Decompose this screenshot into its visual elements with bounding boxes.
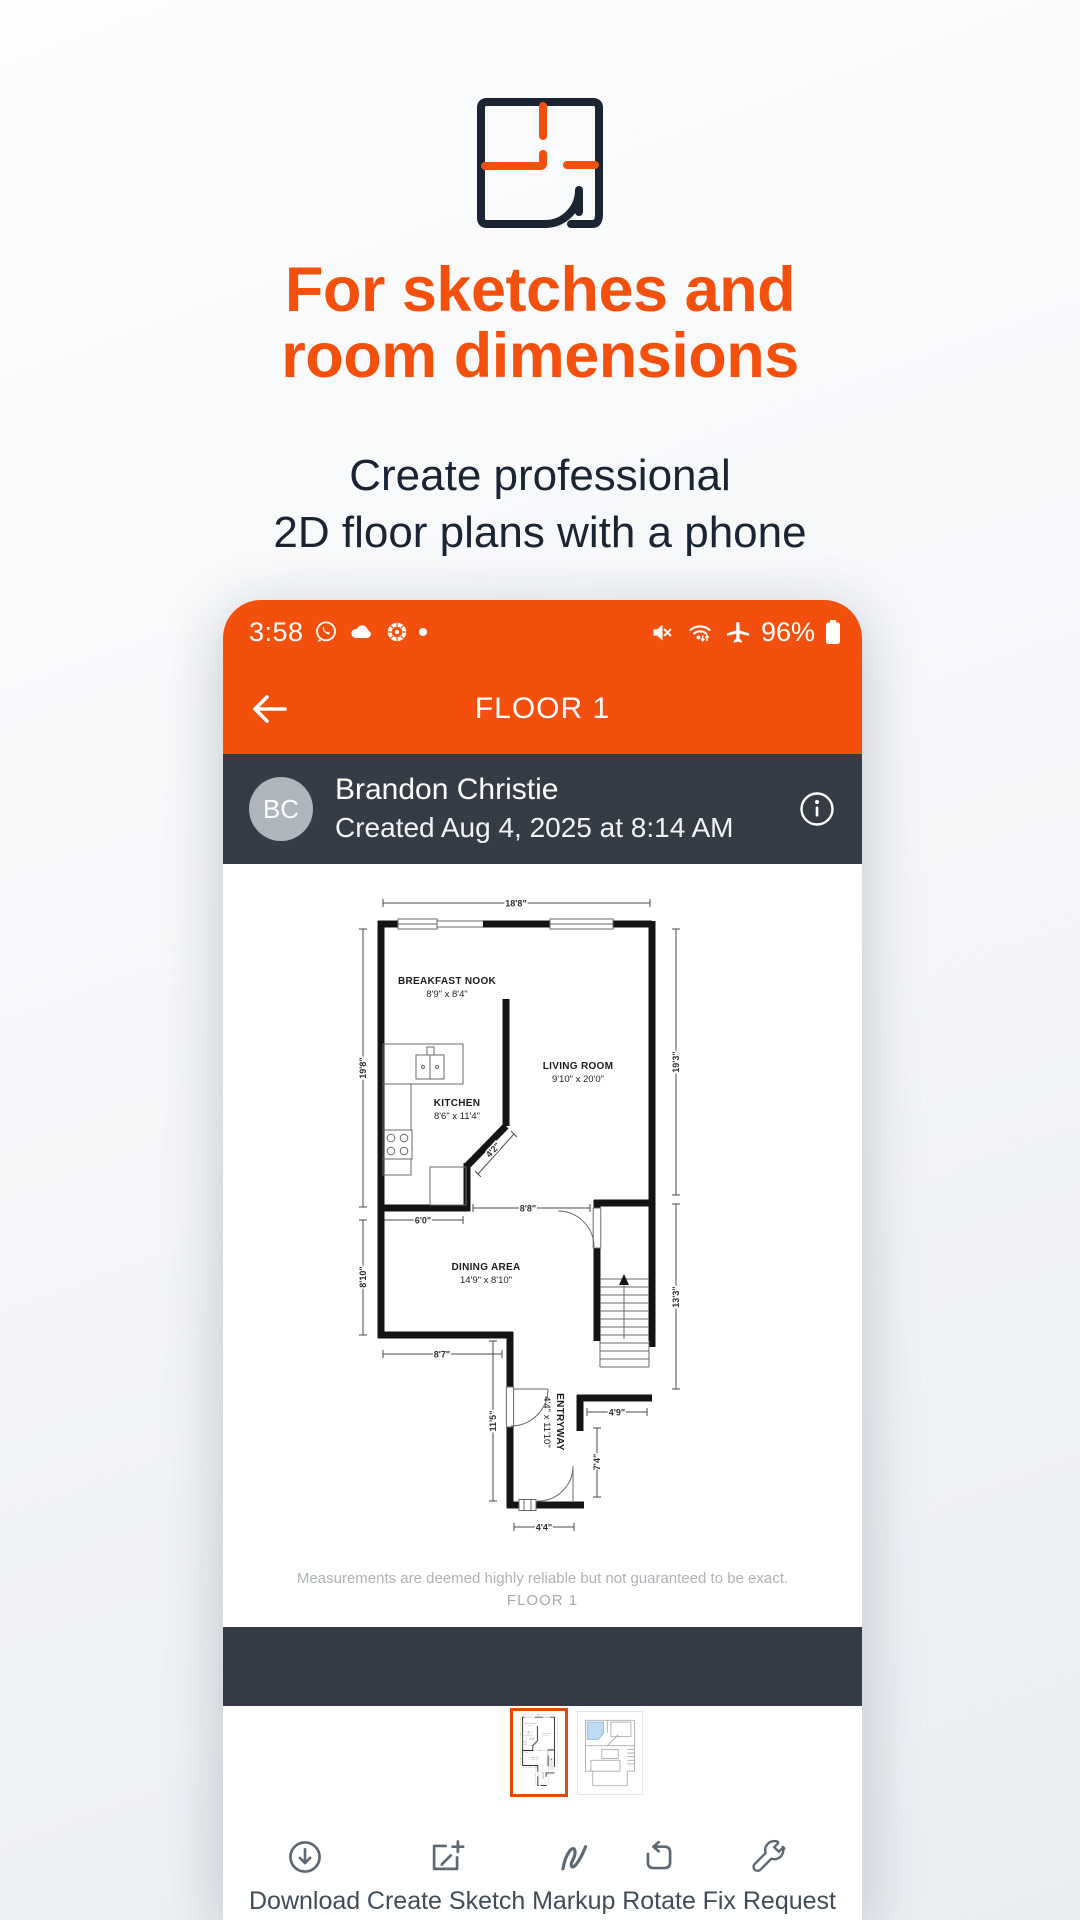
dim-label: 18'8" [505,899,526,909]
floorplan-icon [477,98,603,233]
rotate-icon [640,1838,678,1876]
info-icon[interactable] [798,790,836,828]
dimension-lines [359,899,680,1531]
thumbnail-strip [257,1706,862,1797]
whatsapp-icon [313,619,339,645]
created-date: Created Aug 4, 2025 at 8:14 AM [335,809,734,847]
avatar: BC [249,777,313,841]
floor-name-label: FLOOR 1 [223,1592,862,1609]
cbc-icon [384,619,410,645]
cloud-icon [348,619,375,645]
dim-label: 6'0" [415,1216,431,1226]
room-size: 8'6" x 11'4" [434,1111,480,1122]
battery-percent: 96% [761,617,815,648]
back-button[interactable] [247,689,291,729]
battery-icon [824,618,842,646]
floorplan-drawing: BREAKFAST NOOK 8'9" x 8'4" LIVING ROOM 9… [350,889,690,1569]
dim-label: 19'3" [671,1051,681,1072]
mute-icon [649,619,676,646]
room-label: DINING AREA [451,1262,520,1273]
stairs [600,1274,649,1367]
highlighted-room [587,1722,603,1739]
floor-1-thumbnail[interactable] [510,1708,568,1797]
dim-label: 13'3" [671,1286,681,1307]
markup-icon [555,1838,593,1876]
download-button[interactable]: Download [249,1838,360,1920]
room-label: KITCHEN [434,1098,481,1109]
status-time: 3:58 [249,617,304,648]
rotate-button[interactable]: Rotate [622,1838,696,1920]
download-icon [286,1838,324,1876]
app-bar-title: FLOOR 1 [223,692,862,726]
user-name: Brandon Christie [335,771,734,809]
wifi-icon [685,619,715,646]
room-size: 4'4" x 11'10" [541,1396,552,1447]
notification-dot [419,628,427,636]
bottom-dark-strip [223,1627,862,1706]
room-size: 9'10" x 20'0" [552,1074,604,1085]
dim-label: 19'8" [358,1057,368,1078]
doors [506,1208,600,1511]
fix-request-icon [750,1838,788,1876]
status-bar: 3:58 [223,600,862,664]
floor-2-thumbnail[interactable] [577,1711,643,1795]
dim-label: 8'10" [358,1266,368,1287]
page-subtitle: Create professional 2D floor plans with … [0,447,1080,561]
room-label: ENTRYWAY [554,1393,565,1451]
dim-label: 4'9" [609,1408,625,1418]
dim-label: 4'4" [536,1523,552,1533]
app-bar: FLOOR 1 [223,664,862,754]
room-size: 14'9" x 8'10" [460,1275,512,1286]
airplane-icon [724,618,752,646]
floorplan-viewer: BREAKFAST NOOK 8'9" x 8'4" LIVING ROOM 9… [223,864,862,1627]
user-bar: BC Brandon Christie Created Aug 4, 2025 … [223,754,862,864]
room-label: LIVING ROOM [543,1061,614,1072]
phone-mockup: 3:58 [223,600,862,1920]
page-title: For sketches and room dimensions [0,257,1080,389]
room-label: BREAKFAST NOOK [398,976,497,987]
dim-label: 8'7" [434,1350,450,1360]
dim-label: 11'5" [488,1411,498,1432]
room-size: 8'9" x 8'4" [426,989,468,1000]
walls [378,921,652,1508]
dim-label: 7'4" [592,1454,602,1470]
kitchen-fixtures [383,1044,466,1205]
create-sketch-button[interactable]: Create Sketch [367,1838,525,1920]
measurement-disclaimer: Measurements are deemed highly reliable … [223,1570,862,1587]
dim-label: 8'8" [520,1204,536,1214]
fix-request-button[interactable]: Fix Request [703,1838,836,1920]
action-toolbar: Download Create Sketch Markup Rotate [223,1800,862,1920]
create-sketch-icon [427,1838,465,1876]
markup-button[interactable]: Markup [532,1838,615,1920]
